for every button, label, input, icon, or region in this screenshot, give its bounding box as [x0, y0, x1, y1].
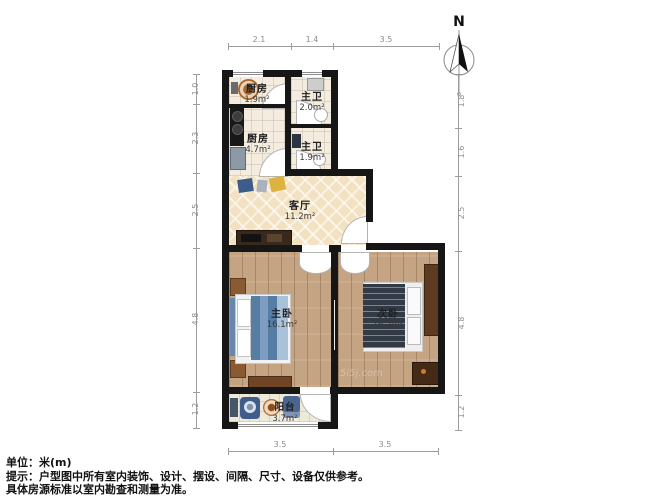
- dim-tick: [333, 43, 334, 50]
- dim-label: 2.5: [191, 198, 201, 222]
- living-item-blue: [237, 178, 254, 193]
- room-name: 厨房: [232, 80, 282, 95]
- dim-tick: [193, 173, 200, 174]
- room-name: 主卫: [287, 88, 337, 103]
- balcony-item-dark: [230, 398, 238, 417]
- dim-label: 1.2: [457, 400, 467, 424]
- sideboard-item: [267, 234, 282, 242]
- room-label-master: 主卧 16.1m²: [252, 305, 312, 330]
- dim-tick: [333, 448, 334, 455]
- dim-label: 3.5: [373, 440, 397, 450]
- north-label: N: [453, 14, 465, 30]
- dim-tick: [291, 43, 292, 50]
- wall: [330, 387, 445, 394]
- cabinet-knob: [421, 369, 426, 374]
- dim-label: 1.4: [300, 35, 324, 45]
- stove-burner: [232, 111, 243, 122]
- wall: [438, 243, 445, 394]
- door-arc-second: [340, 252, 370, 274]
- dim-line-top: [228, 46, 440, 47]
- pillow: [237, 329, 251, 357]
- pillow: [237, 299, 251, 327]
- cabinet: [412, 362, 440, 385]
- dim-tick: [193, 392, 200, 393]
- room-name: 阳台: [274, 402, 295, 413]
- wall: [222, 245, 302, 252]
- wall: [222, 387, 300, 394]
- door-arc-master: [299, 252, 333, 274]
- wall: [366, 243, 445, 250]
- room-name: 主卧: [252, 305, 312, 320]
- room-area: 1.9m²: [232, 95, 282, 105]
- dim-tick: [193, 428, 200, 429]
- dim-label: 3.5: [374, 35, 398, 45]
- living-item-gray: [256, 180, 267, 193]
- dim-label: 3.5: [268, 440, 292, 450]
- footer-notes: 单位：米(m) 提示：户型图中所有室内装饰、设计、摆设、间隔、尺寸、设备仅供参考…: [6, 456, 369, 497]
- north-arrow-icon: N: [436, 10, 482, 98]
- room-label-bath-bottom: 主卫 1.9m²: [287, 138, 337, 163]
- room-label-kitchen-small: 厨房 1.9m²: [232, 80, 282, 105]
- room-label-bath-top: 主卫 2.0m²: [287, 88, 337, 113]
- dim-label: 1.6: [457, 140, 467, 164]
- dim-tick: [455, 128, 462, 129]
- room-name: 客厅: [270, 197, 330, 212]
- dim-tick: [193, 74, 200, 75]
- room-name: 厨房: [233, 130, 283, 145]
- window: [302, 70, 322, 77]
- dim-tick: [228, 448, 229, 455]
- room-label-balcony: 阳台 3.7m²: [255, 395, 315, 424]
- room-area: 1.9m²: [287, 153, 337, 163]
- dim-tick: [455, 251, 462, 252]
- tv: [241, 234, 261, 242]
- dim-tick: [455, 430, 462, 431]
- dim-label: 1.0: [191, 77, 201, 101]
- dim-label: 1.2: [191, 397, 201, 421]
- dim-tick: [455, 395, 462, 396]
- dim-tick: [193, 104, 200, 105]
- wall: [285, 169, 373, 176]
- room-area: 16.1m²: [252, 320, 312, 330]
- tip-note: 提示：户型图中所有室内装饰、设计、摆设、间隔、尺寸、设备仅供参考。: [6, 470, 369, 484]
- dim-label: 4.8: [191, 307, 201, 331]
- room-area: 2.0m²: [287, 103, 337, 113]
- room-area: 16.2m²: [358, 320, 418, 330]
- floorplan-page: 5i5j.com 厨房 1.9m² 主卫 2.0m² 厨房 4.7m² 主卫 1…: [0, 0, 667, 500]
- dim-tick: [193, 248, 200, 249]
- dim-label: 2.3: [191, 126, 201, 150]
- dim-tick: [455, 176, 462, 177]
- dim-label: 4.8: [457, 311, 467, 335]
- room-name: 主卫: [287, 138, 337, 153]
- room-label-second: 次卧 16.2m²: [358, 305, 418, 330]
- dim-label: 2.5: [457, 201, 467, 225]
- room-name: 次卧: [358, 305, 418, 320]
- wall-slit: [334, 300, 335, 350]
- compass: N: [436, 10, 482, 98]
- room-area: 4.7m²: [233, 145, 283, 155]
- room-label-living: 客厅 11.2m²: [270, 197, 330, 222]
- room-area: 3.7m²: [255, 414, 315, 424]
- unit-note: 单位：米(m): [6, 456, 369, 470]
- window: [233, 70, 263, 77]
- room-area: 11.2m²: [270, 212, 330, 222]
- dim-label: 2.1: [247, 35, 271, 45]
- dim-tick: [228, 43, 229, 50]
- standard-note: 具体房源标准以室内勘查和测量为准。: [6, 483, 369, 497]
- room-label-kitchen-main: 厨房 4.7m²: [233, 130, 283, 155]
- dim-tick: [438, 448, 439, 455]
- wall: [329, 245, 341, 252]
- wall: [366, 169, 373, 222]
- watermark: 5i5j.com: [340, 368, 383, 379]
